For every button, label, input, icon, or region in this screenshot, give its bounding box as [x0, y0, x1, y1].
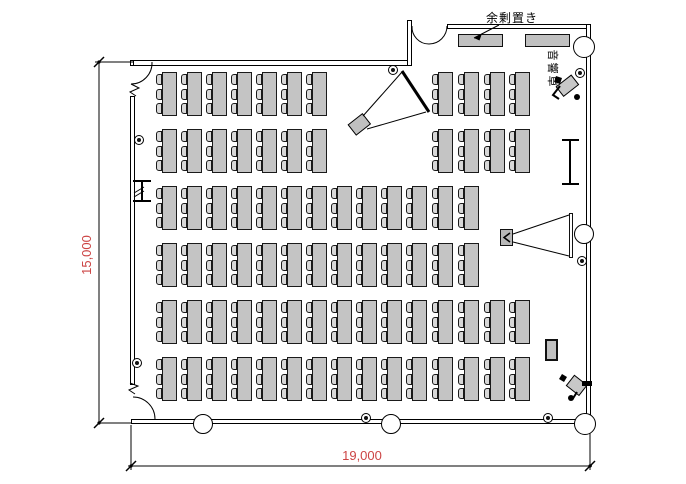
- door-bottom-left-arc: [133, 397, 155, 419]
- person-sound-op-head: [574, 94, 580, 100]
- person-bottom-head: [568, 395, 574, 401]
- projector-top-cone: [363, 72, 426, 129]
- sound-console-label: 音響卓: [547, 45, 561, 93]
- projector-right-cone: [513, 215, 569, 256]
- double-door-left-leaf: [412, 26, 429, 44]
- projector-top: [348, 114, 370, 135]
- dimension-origin-dot: [588, 464, 591, 467]
- left-wall-break: [129, 383, 138, 394]
- linework-overlay: [0, 0, 686, 484]
- dim-ticks: [94, 57, 595, 471]
- door-top-left-arc: [131, 62, 152, 84]
- person-bottom-shoulder: [559, 374, 567, 382]
- surplus-storage-label: 余剰置き: [486, 9, 538, 26]
- dimension-origin-dot: [97, 421, 100, 424]
- projector-right-chevron: [504, 233, 510, 242]
- projection-screen-top: [402, 71, 429, 112]
- person-bottom-arm: [582, 381, 592, 386]
- dimension-origin-dot: [129, 464, 132, 467]
- wall-ibeam: [133, 181, 151, 201]
- floor-plan: 余剰置き 音響卓 15,000 19,000: [0, 0, 686, 484]
- width-dimension-label: 19,000: [330, 448, 394, 463]
- dimension-origin-dot: [97, 60, 100, 63]
- height-dimension-label: 15,000: [79, 225, 95, 285]
- double-door-right-leaf: [429, 26, 447, 44]
- door-top-left-leaf: [130, 84, 139, 96]
- screen-stand-right: [562, 140, 579, 184]
